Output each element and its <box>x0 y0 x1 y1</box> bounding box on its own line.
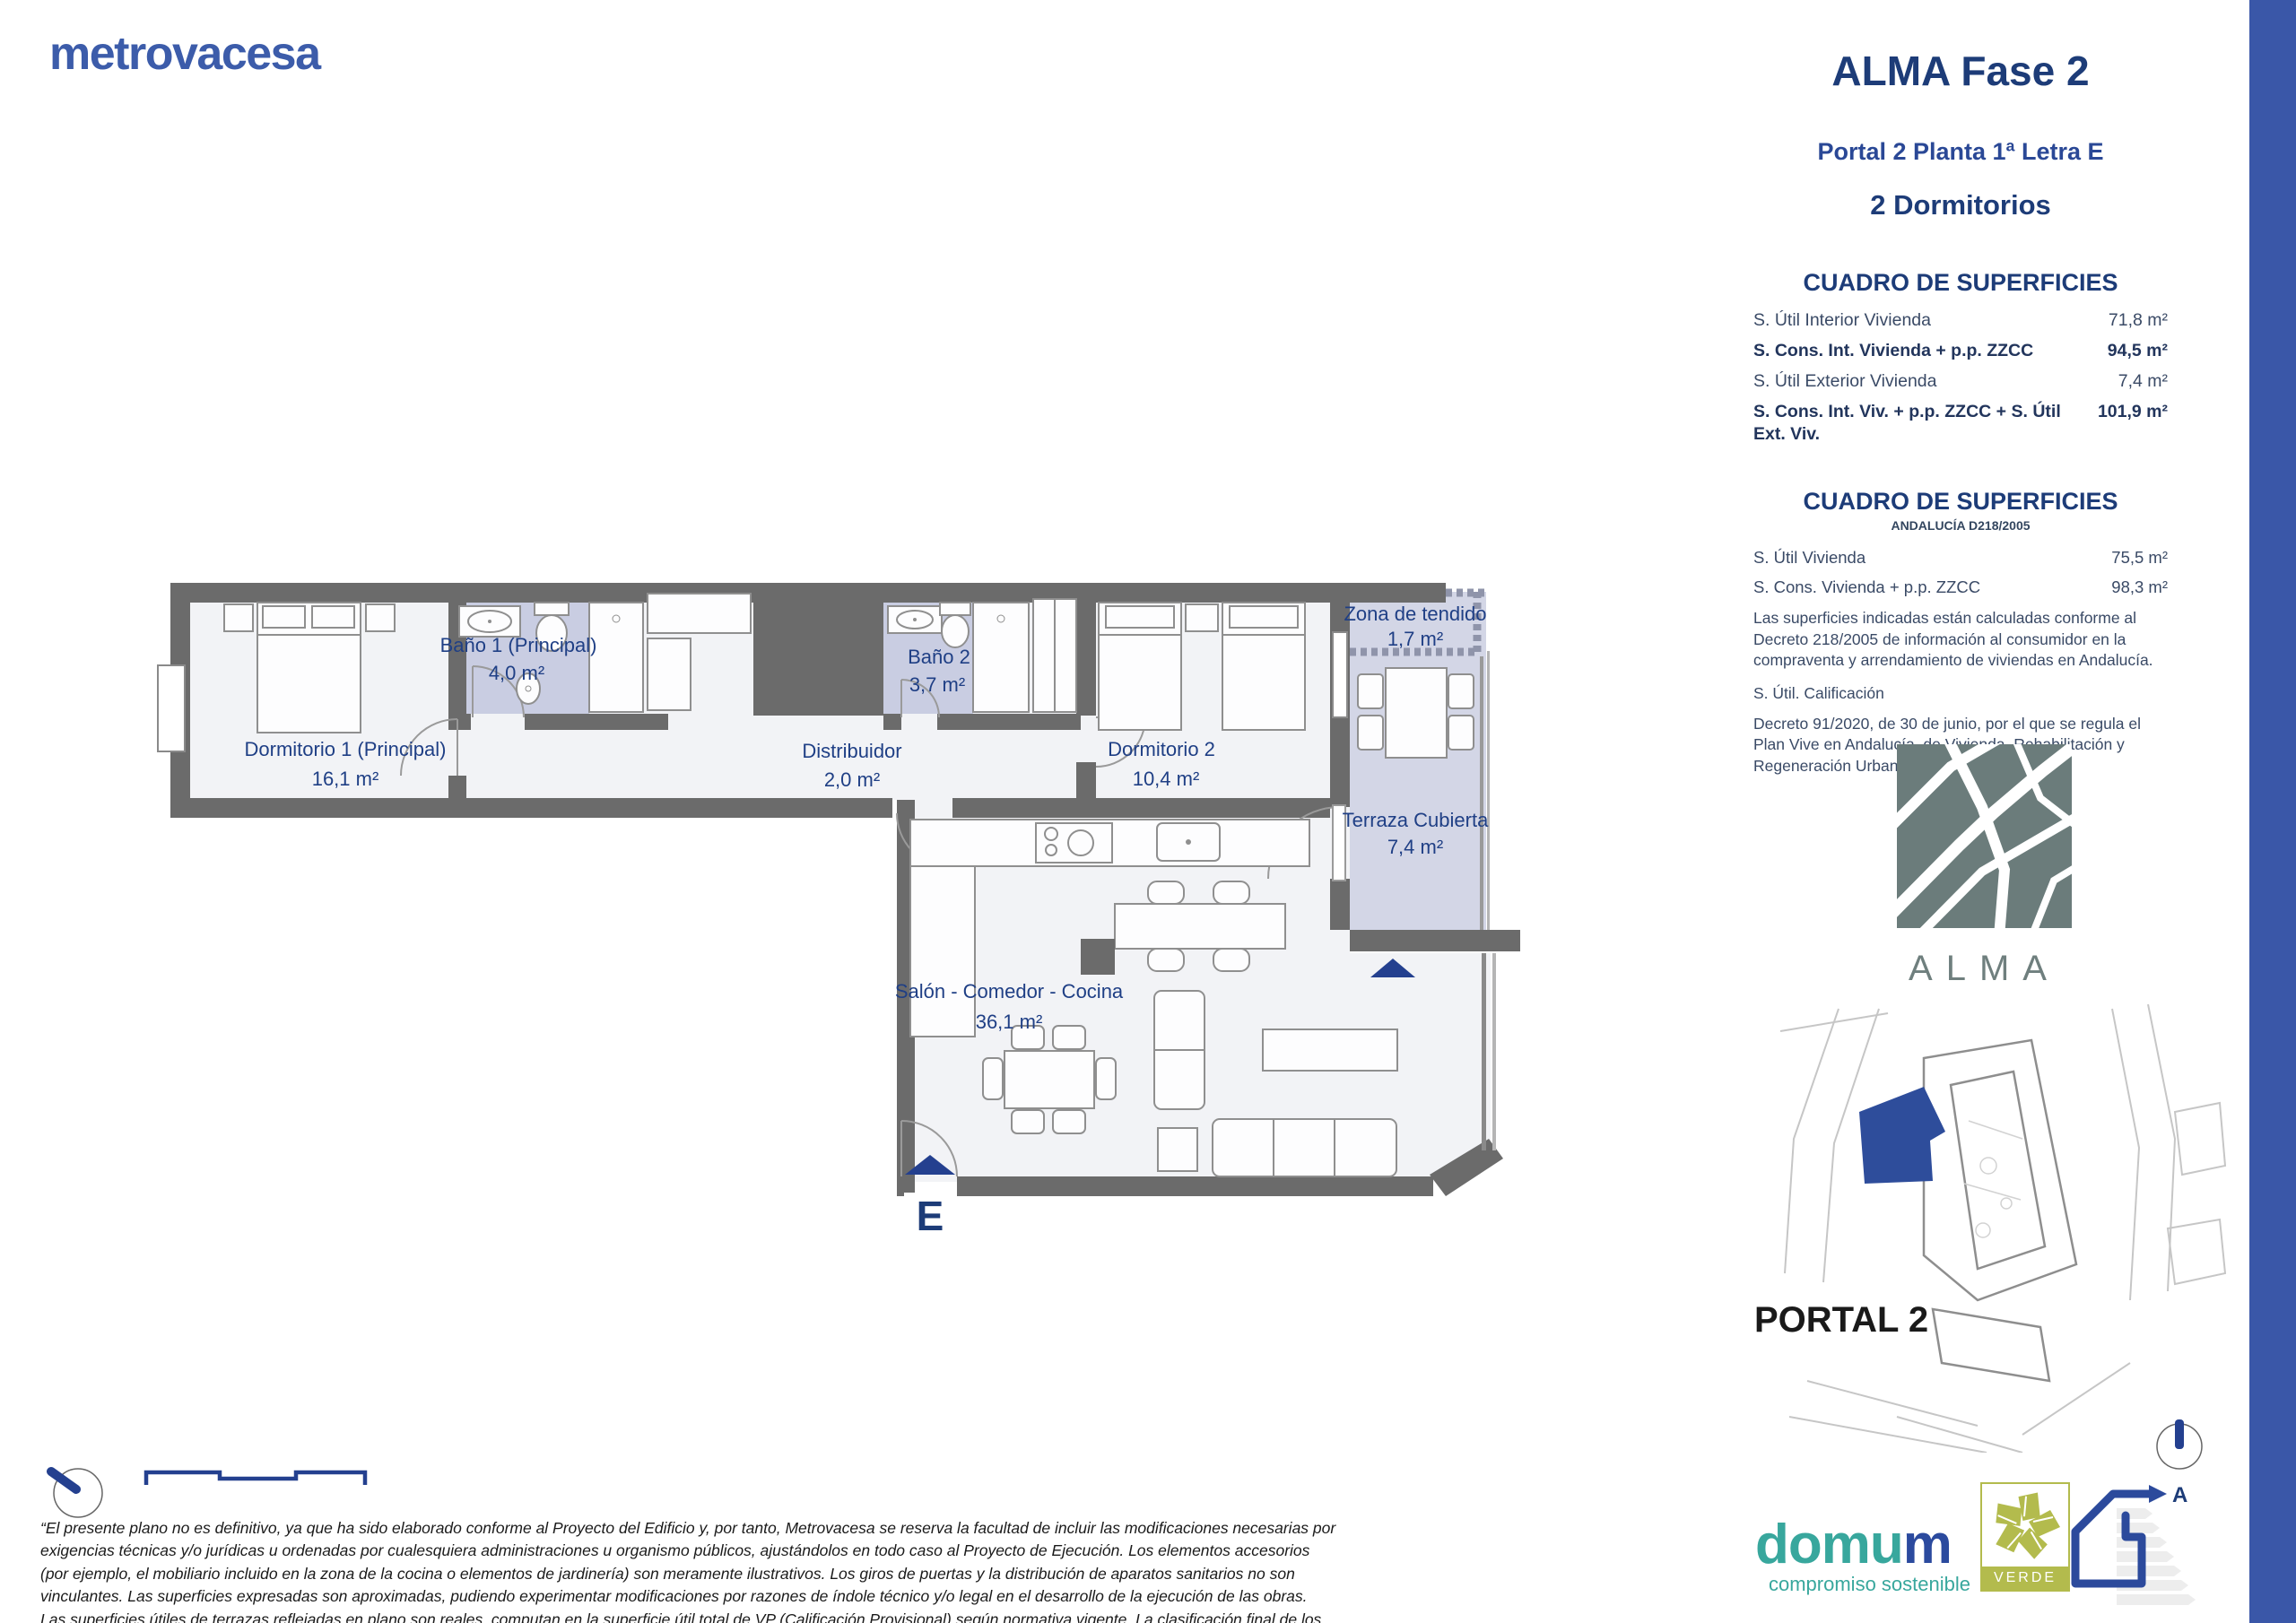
room-area-bano2: 3,7 m² <box>909 673 965 696</box>
row-value: 75,5 m² <box>2111 547 2168 568</box>
room-label-terraza: Terraza Cubierta <box>1343 809 1489 831</box>
surface-table-title: CUADRO DE SUPERFICIES <box>1753 488 2168 516</box>
room-area-distribuidor: 2,0 m² <box>824 768 880 791</box>
row-label: S. Útil Interior Vivienda <box>1753 309 1931 332</box>
room-area-dormitorio2: 10,4 m² <box>1133 768 1200 790</box>
floorplan-sheet: metrovacesa ALMA Fase 2 Portal 2 Planta … <box>0 0 2296 1623</box>
calificacion-label: S. Útil. Calificación <box>1753 684 2168 703</box>
highlighted-portal-block <box>1859 1087 1945 1184</box>
table-row: S. Útil Interior Vivienda 71,8 m² <box>1753 309 2168 332</box>
room-area-tendido: 1,7 m² <box>1387 628 1443 650</box>
row-label: S. Cons. Int. Viv. + p.p. ZZCC + S. Útil… <box>1753 401 2076 446</box>
table-row: S. Útil Vivienda 75,5 m² <box>1753 547 2168 568</box>
site-plan <box>1753 1004 2229 1453</box>
table-row: S. Útil Exterior Vivienda 7,4 m² <box>1753 370 2168 393</box>
verde-badge: VERDE <box>1980 1482 2070 1592</box>
verde-leaf-icon <box>1982 1484 2068 1567</box>
room-area-bano1: 4,0 m² <box>489 662 544 684</box>
energy-rating-icon: A <box>2063 1478 2215 1612</box>
bedrooms-line: 2 Dormitorios <box>1753 189 2168 221</box>
scale-bar <box>139 1463 372 1492</box>
room-label-bano2: Baño 2 <box>908 646 970 668</box>
disclaimer-text: “El presente plano no es definitivo, ya … <box>40 1517 1336 1623</box>
table-row: S. Cons. Vivienda + p.p. ZZCC 98,3 m² <box>1753 577 2168 598</box>
header-block: ALMA Fase 2 Portal 2 Planta 1ª Letra E 2… <box>1753 47 2168 221</box>
room-label-salon: Salón - Comedor - Cocina <box>895 980 1124 1002</box>
room-area-dormitorio1: 16,1 m² <box>312 768 379 790</box>
table-row: S. Cons. Int. Viv. + p.p. ZZCC + S. Útil… <box>1753 401 2168 446</box>
row-value: 98,3 m² <box>2111 577 2168 598</box>
page-edge-bar <box>2249 0 2296 1623</box>
row-label: S. Útil Exterior Vivienda <box>1753 370 1936 393</box>
compass-icon <box>2152 1417 2208 1476</box>
portal-label: PORTAL 2 <box>1754 1300 1928 1341</box>
room-area-salon: 36,1 m² <box>976 1011 1043 1033</box>
row-label: S. Útil Vivienda <box>1753 547 1865 568</box>
domum-logo-teal: domu <box>1755 1514 1903 1575</box>
row-value: 7,4 m² <box>2118 370 2168 393</box>
surface-table-title: CUADRO DE SUPERFICIES <box>1753 269 2168 297</box>
project-title: ALMA Fase 2 <box>1753 47 2168 95</box>
surface-table: CUADRO DE SUPERFICIES S. Útil Interior V… <box>1753 269 2168 446</box>
row-value: 101,9 m² <box>2098 401 2168 423</box>
row-value: 71,8 m² <box>2109 309 2168 332</box>
domum-logo: domum <box>1755 1517 1952 1573</box>
room-label-dormitorio1: Dormitorio 1 (Principal) <box>245 738 447 760</box>
room-label-dormitorio2: Dormitorio 2 <box>1108 738 1215 760</box>
alma-map-logo <box>1897 744 2072 928</box>
room-label-bano1: Baño 1 (Principal) <box>440 634 597 656</box>
surface-table-andalucia: CUADRO DE SUPERFICIES ANDALUCÍA D218/200… <box>1753 488 2168 777</box>
surface-table-subtitle: ANDALUCÍA D218/2005 <box>1753 518 2168 533</box>
domum-tagline: compromiso sostenible <box>1769 1573 1970 1596</box>
row-value: 94,5 m² <box>2108 340 2168 362</box>
floor-plan: E Dormitorio 1 (Principal) 16,1 m² Baño … <box>135 556 1534 1318</box>
domum-logo-blue: m <box>1903 1514 1952 1575</box>
verde-label: VERDE <box>1982 1567 2068 1590</box>
row-label: S. Cons. Int. Vivienda + p.p. ZZCC <box>1753 340 2033 362</box>
unit-line: Portal 2 Planta 1ª Letra E <box>1753 138 2168 166</box>
decreto-218-note: Las superficies indicadas están calculad… <box>1753 608 2168 671</box>
room-label-distribuidor: Distribuidor <box>802 740 901 762</box>
energy-rating-letter: A <box>2172 1483 2187 1507</box>
entrance-letter: E <box>917 1193 944 1239</box>
room-area-terraza: 7,4 m² <box>1387 836 1443 858</box>
alma-wordmark: ALMA <box>1879 949 2090 989</box>
table-row: S. Cons. Int. Vivienda + p.p. ZZCC 94,5 … <box>1753 340 2168 362</box>
metrovacesa-logo: metrovacesa <box>49 27 320 81</box>
room-label-tendido: Zona de tendido <box>1344 603 1486 625</box>
row-label: S. Cons. Vivienda + p.p. ZZCC <box>1753 577 1980 598</box>
